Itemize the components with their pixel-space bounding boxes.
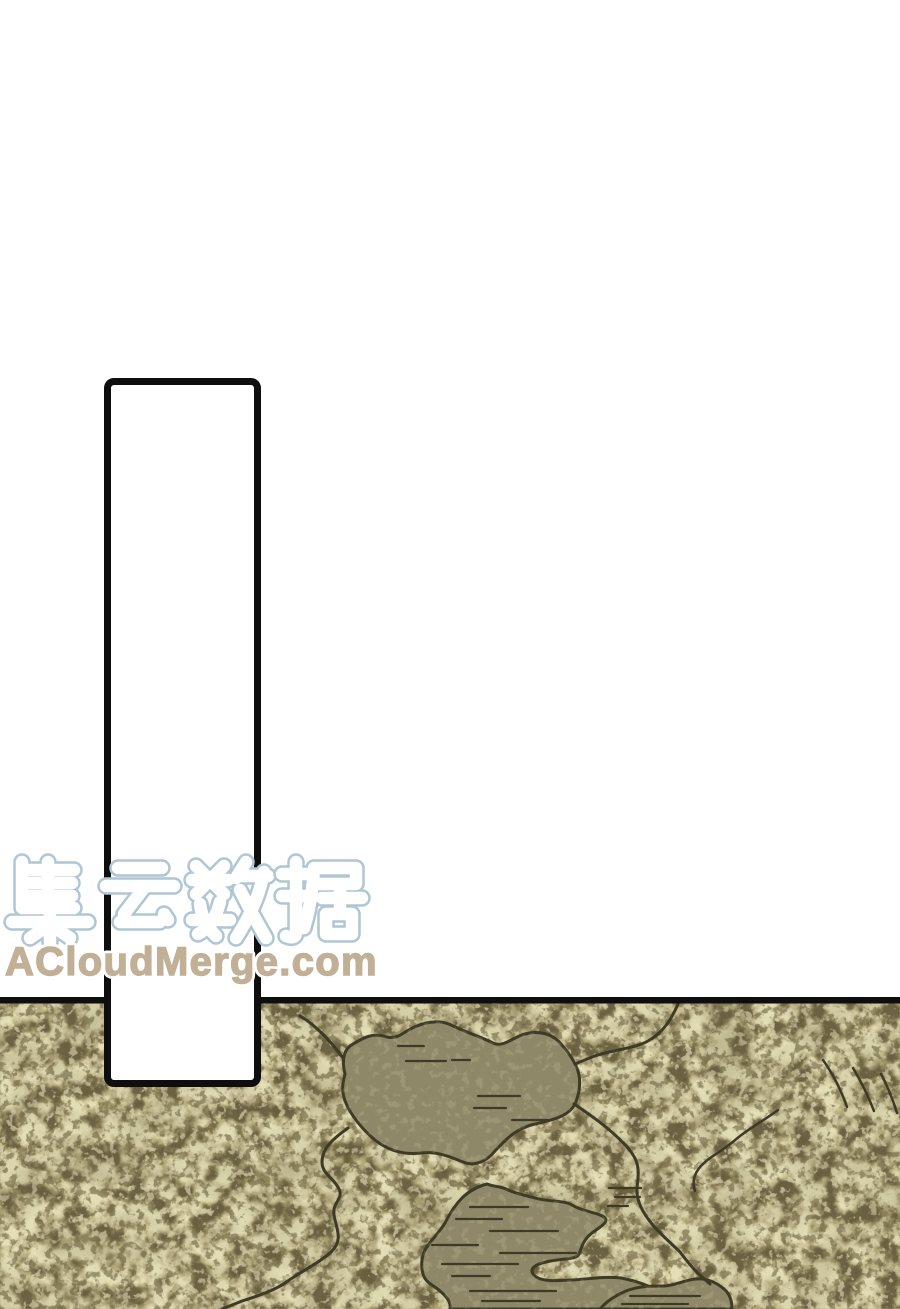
svg-text:ACloudMerge.com: ACloudMerge.com [5, 940, 378, 984]
